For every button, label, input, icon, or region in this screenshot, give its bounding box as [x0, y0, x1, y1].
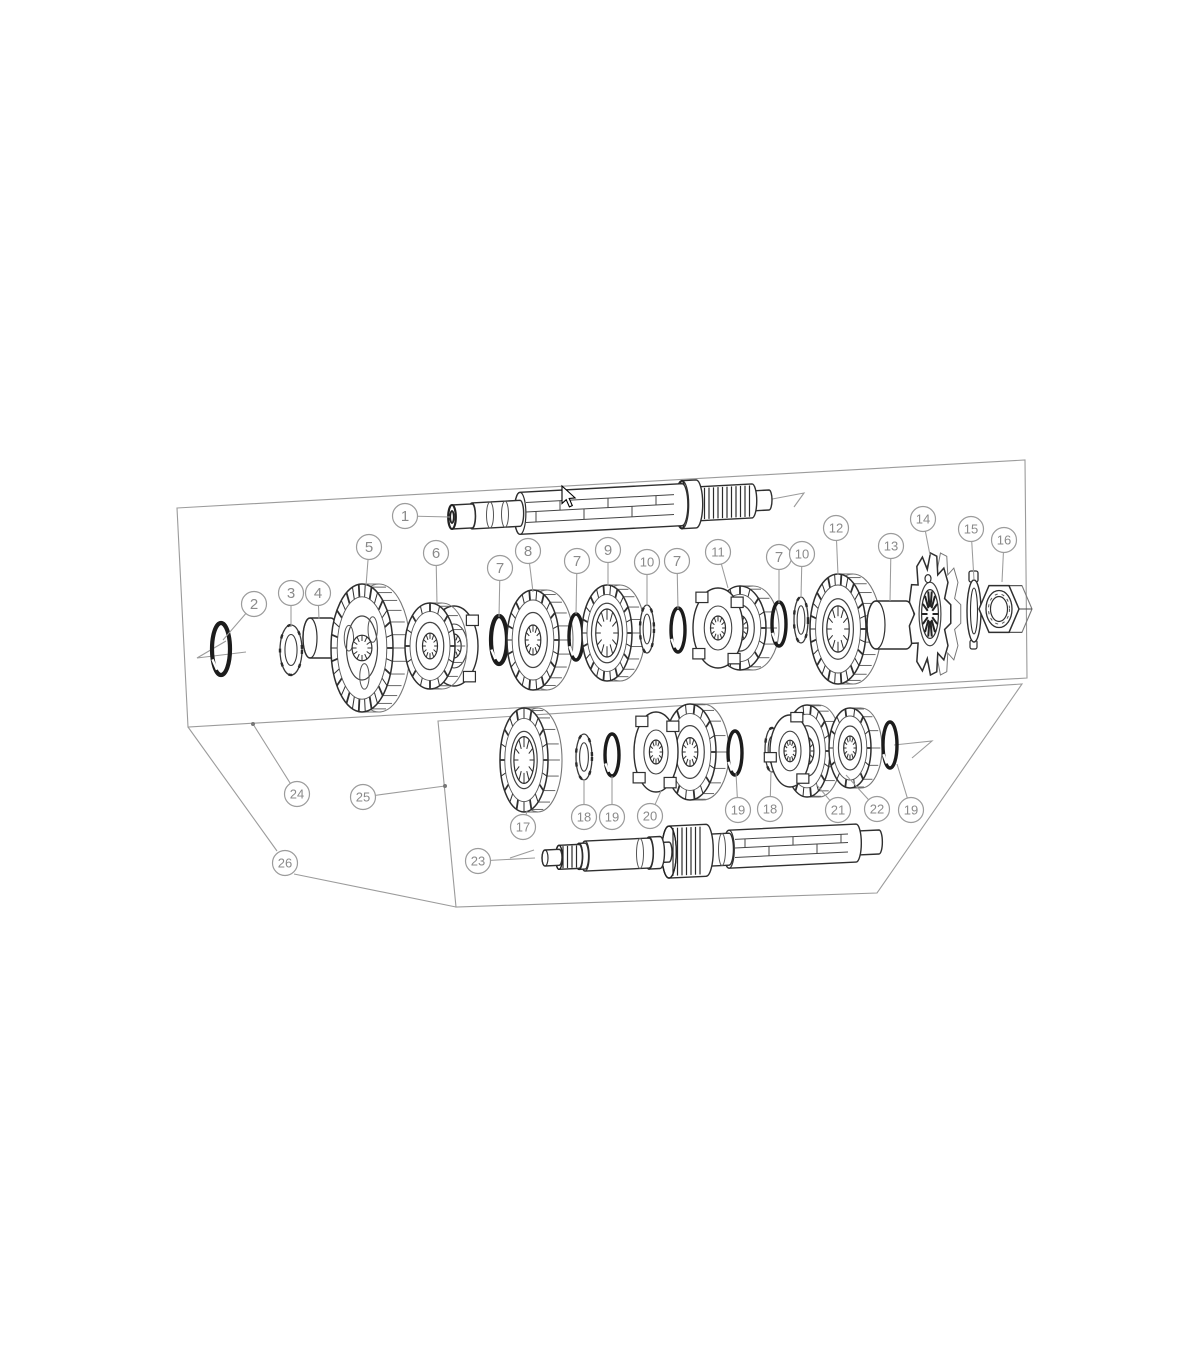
leader-line [576, 573, 577, 614]
balloon-label: 1 [401, 508, 409, 525]
balloon-13: 13 [879, 534, 904, 602]
balloon-label: 18 [763, 802, 777, 817]
part-3-washer [280, 625, 302, 675]
part-13-spacer [867, 601, 915, 649]
part-14-sprocket [909, 553, 960, 675]
part-8-gear [507, 590, 573, 690]
part-6-dog-gear [405, 603, 478, 689]
part-11-dog-gear [693, 586, 779, 670]
part-9-gear [582, 585, 645, 681]
balloon-label: 4 [314, 585, 322, 602]
balloon-label: 15 [964, 522, 978, 537]
balloon-label: 23 [471, 854, 485, 869]
balloon-26: 26 [273, 851, 298, 876]
assembly-26-line-b [294, 874, 456, 907]
balloon-12: 12 [824, 516, 849, 576]
balloon-7: 7 [488, 556, 513, 618]
balloon-label: 9 [604, 542, 612, 559]
balloon-label: 12 [829, 521, 843, 536]
balloon-24: 24 [251, 722, 310, 807]
part-5-gear [331, 584, 410, 712]
balloon-label: 7 [496, 560, 504, 577]
balloon-18: 18 [572, 779, 597, 830]
balloon-8: 8 [516, 539, 541, 593]
balloon-5: 5 [357, 535, 382, 587]
balloon-label: 18 [577, 810, 591, 825]
balloon-label: 20 [643, 809, 657, 824]
balloon-22: 22 [846, 775, 890, 822]
leader-line [375, 786, 445, 795]
balloon-20: 20 [638, 791, 663, 829]
balloon-19: 19 [897, 764, 924, 823]
part-17-gear [500, 708, 562, 812]
balloon-label: 24 [290, 787, 304, 802]
leader-line [721, 564, 728, 588]
leader-line [837, 540, 838, 575]
part-7-circlip-b [569, 614, 583, 660]
balloon-7: 7 [665, 549, 690, 610]
part-19-circlip-a [605, 734, 619, 776]
balloon-label: 14 [916, 512, 930, 527]
leader-line [318, 605, 319, 619]
balloon-21: 21 [816, 784, 851, 823]
balloon-17: 17 [511, 811, 536, 840]
balloon-label: 10 [795, 547, 809, 562]
assembly-26-line-a [188, 727, 277, 851]
part-23-counter-shaft [542, 824, 882, 878]
balloon-label: 3 [287, 585, 295, 602]
part-16-nut [979, 586, 1032, 633]
leader-line [890, 558, 891, 601]
leader-line [253, 724, 290, 783]
balloon-label: 17 [516, 820, 530, 835]
balloon-label: 19 [731, 803, 745, 818]
balloon-4: 4 [306, 581, 331, 620]
balloon-9: 9 [596, 538, 621, 587]
part-1-main-shaft [448, 480, 772, 534]
leader-line [801, 566, 802, 598]
leader-line [925, 531, 930, 555]
balloon-label: 21 [831, 803, 845, 818]
balloon-label: 16 [997, 533, 1011, 548]
balloon-19: 19 [600, 776, 625, 830]
part-7-circlip-a [491, 616, 507, 664]
balloon-label: 13 [884, 539, 898, 554]
part-18-washer-a [576, 734, 592, 780]
leader-line [490, 858, 535, 860]
balloon-7: 7 [565, 549, 590, 615]
balloon-16: 16 [992, 528, 1017, 583]
part-22-gear [829, 708, 882, 788]
balloon-1: 1 [393, 504, 451, 529]
direction-arrow-23 [510, 850, 534, 858]
balloon-label: 8 [524, 543, 532, 560]
balloon-23: 23 [466, 849, 536, 874]
gearbox-parts-diagram-image: 1234567879107117101213141516171819201918… [0, 0, 1200, 1372]
leader-line [655, 791, 661, 805]
part-10-washer-a [640, 605, 654, 653]
balloon-3: 3 [279, 581, 304, 628]
part-19-circlip-b [728, 731, 742, 775]
balloon-label: 7 [775, 549, 783, 566]
part-2-circlip [212, 623, 230, 675]
balloon-label: 22 [870, 802, 884, 817]
balloon-label: 19 [904, 803, 918, 818]
leader-line [736, 773, 737, 798]
balloon-label: 10 [640, 555, 654, 570]
balloon-label: 19 [605, 810, 619, 825]
direction-arrow-right-lower [894, 741, 932, 758]
leader-dot [251, 722, 255, 726]
parts-diagram-svg: 1234567879107117101213141516171819201918… [0, 0, 1200, 1372]
balloon-7: 7 [767, 545, 792, 604]
leader-line [677, 573, 678, 609]
balloon-14: 14 [911, 507, 936, 556]
part-20-dog-gear [633, 704, 729, 800]
part-7-circlip-c [671, 608, 685, 652]
leader-line [417, 516, 450, 517]
leader-line [366, 559, 368, 586]
part-10-washer-b [794, 597, 808, 643]
leader-dot [443, 784, 447, 788]
balloon-label: 6 [432, 545, 440, 562]
leader-line [499, 580, 500, 617]
balloon-label: 2 [250, 596, 258, 613]
balloon-label: 7 [573, 553, 581, 570]
balloon-6: 6 [424, 541, 449, 605]
balloon-25: 25 [351, 784, 448, 810]
balloon-label: 11 [711, 545, 725, 560]
direction-arrow-left [197, 641, 246, 658]
balloon-11: 11 [706, 540, 731, 589]
balloon-label: 5 [365, 539, 373, 556]
balloon-label: 7 [673, 553, 681, 570]
leader-line [770, 771, 771, 797]
balloon-10: 10 [635, 550, 660, 607]
leader-line [436, 565, 437, 604]
direction-arrows [197, 493, 932, 858]
balloon-19: 19 [726, 773, 751, 823]
leader-line [897, 764, 907, 798]
balloon-label: 25 [356, 790, 370, 805]
balloon-10: 10 [790, 542, 815, 599]
leader-line [530, 563, 533, 592]
leader-line [1002, 552, 1003, 582]
balloon-label: 26 [278, 856, 292, 871]
balloon-2: 2 [223, 592, 267, 641]
